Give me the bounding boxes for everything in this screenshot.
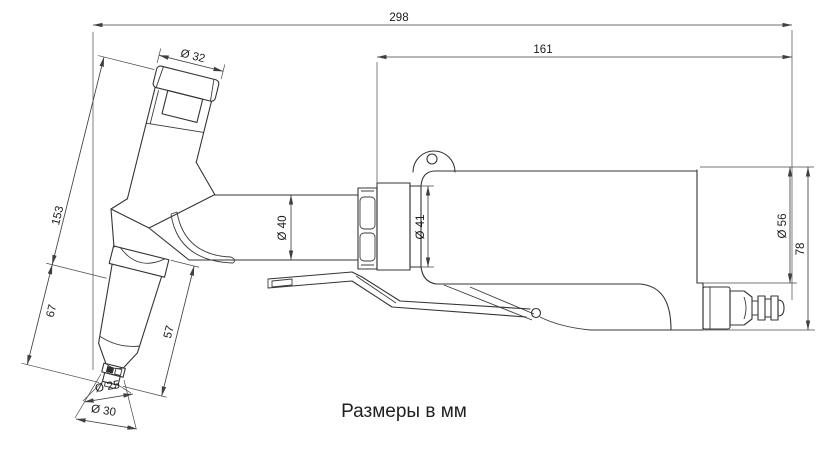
hex-nut-flat-lower [360,233,375,261]
collet-cylinder-lines [94,336,139,372]
grip-front-edges [444,285,590,330]
dim-153-line [52,57,104,265]
nozzle-detail [115,368,122,375]
dimension-overall-length: 298 [93,12,792,370]
collet-cylinder [88,264,161,371]
dimension-rear-height: 78 [703,167,815,330]
angle-head-body [111,162,358,263]
pneumatic-tool-dimension-drawing: Ø 32 153 67 57 [0,0,824,472]
dimension-neck-diameter: Ø 40 [277,195,291,260]
inlet-bushing [703,287,730,329]
neck-tube [189,195,358,260]
dim-153-extension-lines [46,56,158,279]
dimension-body-diameter: Ø 56 [700,167,814,283]
dim-25-label: Ø 25 [94,379,121,395]
dim-153-label: 153 [50,205,66,227]
lever-pivot-pin [532,309,541,318]
hex-nut-outline [358,188,377,269]
hose-barb-ridges [758,296,778,320]
head-left-edge [111,199,127,247]
dim-41-label: Ø 41 [415,215,427,240]
dim-57-label: 57 [162,324,177,339]
handle-cap-recess [162,90,203,122]
collar-outline [377,183,410,270]
handle-barrel [127,87,211,213]
head-right-edge [196,162,215,195]
hex-nut-flat-edges [361,191,374,265]
dim-56-extension-lines [700,167,814,283]
hose-barb-tip [778,300,784,316]
throttle-lever [268,272,541,318]
dim-67-label: 67 [45,303,60,318]
dim-30-line [76,419,137,429]
dim-32-label: Ø 32 [179,48,206,66]
dim-56-label: Ø 56 [777,214,789,239]
collet-band-curve [118,248,165,268]
motor-body [413,151,703,330]
dim-161-label: 161 [533,44,552,56]
dimension-tip-diameter: Ø 25 [83,379,133,402]
head-curved-slot [171,212,235,263]
head-crease-lines [111,195,214,260]
lever-bend-lines [268,276,396,303]
units-caption: Размеры в мм [341,401,467,422]
dim-25-line [84,394,133,402]
nozzle-detail-dark [106,366,114,374]
rear-grip-outline [590,283,703,330]
dimension-handle-length: 153 [41,54,159,278]
inlet-fitting-arc [744,297,746,319]
body-outline [421,170,697,284]
dim-298-label: 298 [389,12,408,24]
dim-30-label: Ø 30 [90,403,117,419]
inlet-fitting [730,291,752,325]
dim-298-extension-lines [93,30,792,370]
hanging-ring-hole [427,154,437,164]
hex-nut-flat-upper [360,197,375,229]
air-inlet [703,287,784,329]
dim-78-label: 78 [795,243,807,256]
handle-barrel-joint [146,89,211,137]
dimension-collar-diameter: Ø 41 [415,186,434,267]
hex-nut [358,188,377,269]
handle-assembly: Ø 32 153 67 57 [15,27,249,401]
dim-40-label: Ø 40 [277,216,289,241]
technical-drawing-page: Ø 32 153 67 57 [0,0,824,472]
dimension-motor-body-length: 161 [377,44,792,186]
handle-cap-edges [156,66,216,101]
dim-67-extension-line [21,363,99,382]
barb-neck [752,301,758,315]
